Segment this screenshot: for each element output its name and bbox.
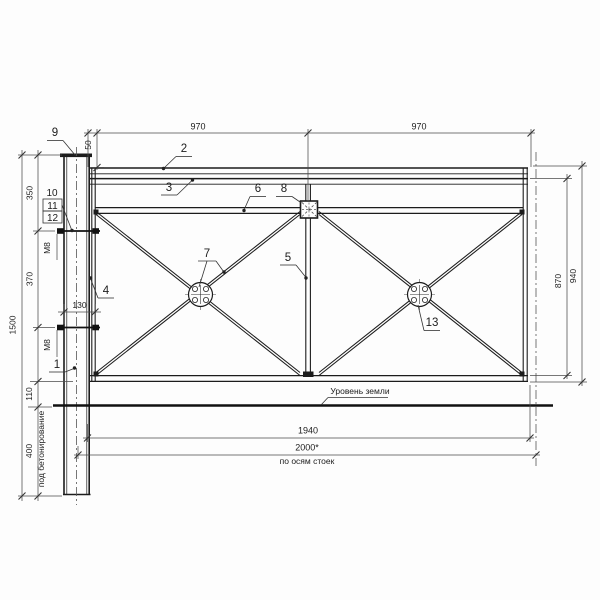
bolt-upper: [57, 228, 100, 234]
square-node: [301, 201, 318, 218]
bolt-label-lower: М8: [42, 339, 52, 351]
callout-5: 5: [285, 252, 291, 264]
callout-1: 1: [54, 359, 60, 371]
callout-10: 10: [46, 188, 58, 199]
callout-3: 3: [166, 182, 172, 194]
dim-1940: 1940: [298, 426, 318, 436]
dim-span-1: 970: [190, 122, 205, 132]
callout-6: 6: [255, 183, 261, 195]
panel-frame: [90, 168, 528, 382]
dim-110: 110: [24, 387, 34, 401]
callout-7: 7: [204, 248, 210, 260]
second-rail: [90, 179, 528, 185]
corner-connections: [94, 210, 525, 378]
callout-13: 13: [426, 317, 439, 329]
left-post: [60, 147, 92, 505]
callout-stack-10-11-12: 10 11 12: [43, 188, 74, 232]
callout-4: 4: [103, 285, 110, 297]
bolt-lower: [57, 325, 100, 331]
dim-350: 350: [25, 186, 35, 200]
note-axes: по осям стоек: [280, 456, 335, 466]
callout-9: 9: [52, 127, 58, 139]
dim-400: 400: [24, 444, 34, 458]
fence-section-drawing: 970 970 50 350 370 110 400 1500: [0, 0, 600, 600]
callout-8: 8: [281, 183, 287, 195]
callout-12: 12: [47, 213, 59, 224]
dim-870: 870: [553, 274, 563, 288]
dim-940: 940: [568, 269, 578, 283]
callout-11: 11: [47, 201, 58, 212]
dim-370: 370: [25, 272, 35, 286]
dim-offset-50: 50: [83, 140, 93, 150]
callouts: 9 2 3 6 8 5 7 4: [43, 127, 440, 372]
drawing-page: 970 970 50 350 370 110 400 1500: [0, 0, 600, 600]
dim-1500: 1500: [8, 315, 18, 334]
bolt-label-upper: М8: [42, 242, 52, 254]
post-cap: [60, 154, 92, 158]
top-rail: [90, 168, 528, 174]
callout-2: 2: [181, 143, 187, 155]
dim-span-2: 970: [411, 122, 426, 132]
dim-2000: 2000*: [295, 443, 319, 453]
diagonal-braces: [96, 212, 522, 376]
dim-130: 130: [72, 300, 86, 310]
note-ground-level: Уровень земли: [330, 386, 389, 396]
note-concrete: под бетонирование: [36, 411, 46, 488]
